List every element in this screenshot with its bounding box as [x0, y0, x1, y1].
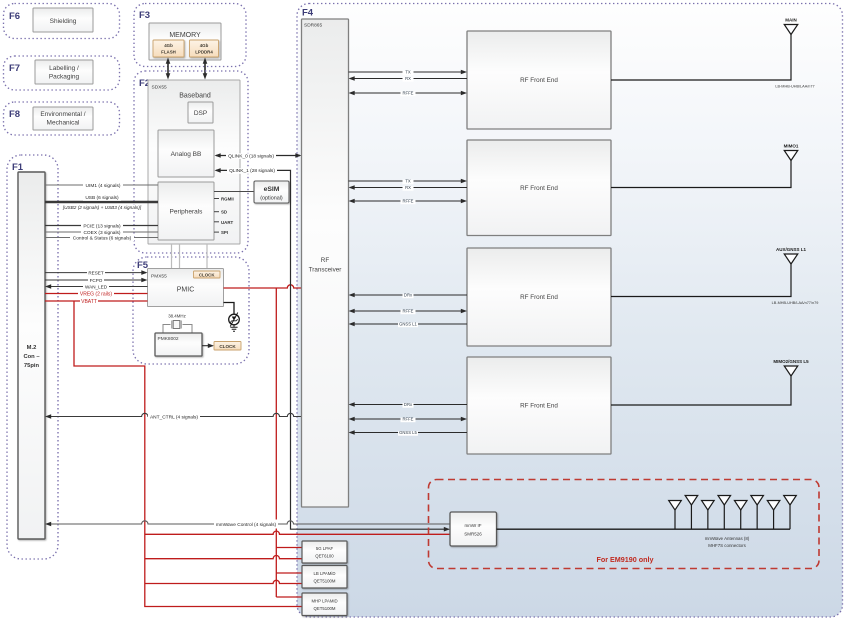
svg-text:Shielding: Shielding: [50, 18, 77, 25]
svg-text:CLOCK: CLOCK: [219, 344, 236, 349]
svg-text:TX: TX: [405, 70, 411, 75]
svg-text:F7: F7: [9, 63, 20, 74]
svg-text:MHF7S connectors: MHF7S connectors: [708, 543, 746, 548]
svg-text:QLINK_1 (28 signals): QLINK_1 (28 signals): [229, 168, 275, 174]
svg-text:F5: F5: [137, 260, 149, 271]
svg-text:F8: F8: [9, 109, 20, 120]
svg-text:RF Front End: RF Front End: [520, 294, 558, 301]
svg-text:GNSS L5: GNSS L5: [399, 430, 417, 435]
svg-text:RF Front End: RF Front End: [520, 403, 558, 410]
svg-text:75pin: 75pin: [24, 363, 40, 369]
svg-text:RESET: RESET: [88, 270, 104, 275]
svg-text:Transceiver: Transceiver: [309, 267, 342, 274]
svg-text:mmWave Antennas (8): mmWave Antennas (8): [705, 536, 750, 541]
svg-text:SD: SD: [221, 210, 227, 215]
svg-text:RFFE: RFFE: [403, 91, 414, 96]
svg-text:RF Front End: RF Front End: [520, 185, 558, 192]
svg-text:SMR526: SMR526: [464, 532, 482, 537]
svg-text:VREG (2 rails): VREG (2 rails): [80, 292, 113, 298]
svg-text:F6: F6: [9, 11, 20, 22]
svg-text:MHP LPAMiD: MHP LPAMiD: [311, 598, 337, 603]
svg-text:F3: F3: [139, 10, 150, 21]
svg-text:SDX55: SDX55: [152, 85, 168, 91]
svg-text:5G LPAF: 5G LPAF: [316, 546, 334, 551]
svg-text:M.2: M.2: [27, 345, 37, 351]
svg-text:4Gb: 4Gb: [200, 43, 209, 48]
svg-text:QET5100M: QET5100M: [314, 578, 336, 583]
svg-text:(optional): (optional): [260, 196, 283, 202]
svg-text:QLINK_0 (18 signals): QLINK_0 (18 signals): [228, 153, 274, 159]
svg-text:Analog BB: Analog BB: [171, 151, 202, 158]
svg-text:AUX/GNSS L1: AUX/GNSS L1: [776, 247, 807, 252]
svg-text:FLASH: FLASH: [161, 50, 176, 55]
svg-text:eSIM: eSIM: [264, 186, 280, 193]
svg-text:UIM1 (4 signals): UIM1 (4 signals): [86, 183, 121, 189]
svg-text:LB-MHB-UHB/LAA/n77: LB-MHB-UHB/LAA/n77: [775, 85, 814, 89]
svg-text:mmW IF: mmW IF: [465, 523, 482, 528]
svg-text:UART: UART: [221, 220, 234, 225]
svg-text:COEX (3 signals): COEX (3 signals): [83, 230, 120, 236]
svg-text:PMK8002: PMK8002: [158, 336, 179, 342]
svg-text:Mechanical: Mechanical: [47, 120, 80, 127]
svg-text:Environmental /: Environmental /: [40, 111, 85, 118]
svg-text:WAN_LED: WAN_LED: [85, 284, 108, 289]
svg-text:QET6100: QET6100: [315, 554, 334, 559]
svg-text:RFFE: RFFE: [403, 199, 414, 204]
svg-text:MAIN: MAIN: [785, 17, 797, 22]
svg-text:PMX55: PMX55: [151, 274, 167, 280]
svg-text:RF Front End: RF Front End: [520, 77, 558, 84]
svg-text:Peripherals: Peripherals: [170, 209, 204, 216]
svg-text:MIMO1: MIMO1: [784, 143, 799, 148]
svg-text:RX: RX: [405, 76, 411, 81]
svg-text:RFFE: RFFE: [403, 309, 414, 314]
svg-text:LB LPAMiD: LB LPAMiD: [314, 571, 336, 576]
svg-text:38.4MHz: 38.4MHz: [168, 314, 186, 319]
svg-text:MIMO2/GNSS L5: MIMO2/GNSS L5: [773, 359, 809, 364]
svg-text:LB-MHB-UHB/LAA/n77/n79: LB-MHB-UHB/LAA/n77/n79: [772, 301, 819, 305]
svg-text:F4: F4: [302, 8, 314, 19]
svg-text:[USB2 (2 signals) + USB3 (4 si: [USB2 (2 signals) + USB3 (4 signals)]: [62, 205, 142, 210]
svg-text:DSP: DSP: [194, 110, 207, 117]
svg-text:Con –: Con –: [23, 354, 40, 360]
svg-text:mmWave Control (4 signals): mmWave Control (4 signals): [216, 522, 277, 528]
svg-text:TX: TX: [405, 179, 411, 184]
svg-text:Packaging: Packaging: [49, 73, 80, 80]
svg-text:RFFE: RFFE: [403, 417, 414, 422]
svg-text:PMIC: PMIC: [177, 287, 195, 294]
svg-text:USB (6 signals): USB (6 signals): [85, 195, 119, 201]
svg-text:FCPO: FCPO: [90, 278, 103, 283]
svg-text:4Gb: 4Gb: [164, 43, 173, 48]
svg-text:GNSS L1: GNSS L1: [399, 322, 417, 327]
svg-text:MEMORY: MEMORY: [169, 32, 201, 39]
svg-text:SDR865: SDR865: [304, 23, 322, 29]
svg-text:RGMII: RGMII: [221, 197, 234, 202]
svg-text:CLOCK: CLOCK: [199, 272, 215, 277]
svg-text:LPDDR4: LPDDR4: [195, 50, 213, 55]
svg-text:SPI: SPI: [221, 230, 228, 235]
svg-text:DRx: DRx: [404, 293, 413, 298]
svg-text:PCIE (13 signals): PCIE (13 signals): [83, 223, 121, 229]
svg-text:Labelling /: Labelling /: [49, 65, 79, 72]
svg-text:Baseband: Baseband: [179, 93, 211, 100]
svg-text:RF: RF: [321, 257, 330, 264]
svg-text:VBATT: VBATT: [81, 299, 97, 305]
svg-text:RX: RX: [405, 185, 411, 190]
svg-text:Control & Status (6 signals): Control & Status (6 signals): [73, 236, 132, 242]
svg-text:DRx: DRx: [404, 402, 413, 407]
svg-text:QET5100M: QET5100M: [314, 606, 336, 611]
svg-text:ANT_CTRL (4 signals): ANT_CTRL (4 signals): [150, 414, 198, 420]
svg-text:For EM9190 only: For EM9190 only: [596, 555, 653, 564]
